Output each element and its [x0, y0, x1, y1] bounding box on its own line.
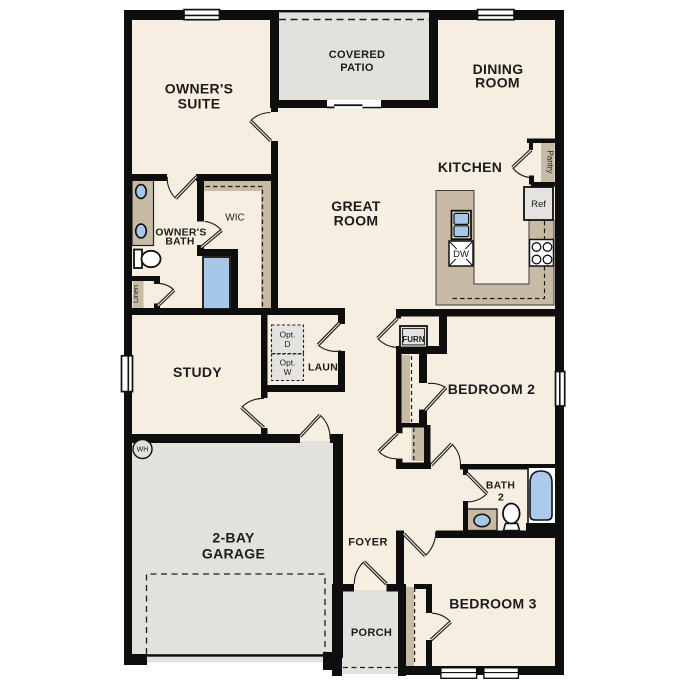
svg-text:BATH: BATH: [165, 237, 194, 248]
svg-text:BEDROOM 2: BEDROOM 2: [448, 381, 536, 397]
svg-text:ROOM: ROOM: [334, 213, 379, 229]
svg-text:PORCH: PORCH: [351, 627, 392, 639]
svg-text:WIC: WIC: [225, 213, 244, 224]
svg-text:BATH: BATH: [486, 481, 515, 492]
svg-text:Linen: Linen: [131, 285, 140, 303]
svg-text:2: 2: [498, 493, 504, 504]
svg-text:D: D: [285, 339, 291, 349]
svg-text:ROOM: ROOM: [475, 75, 520, 91]
svg-text:GARAGE: GARAGE: [202, 546, 265, 562]
svg-text:Opt.: Opt.: [280, 358, 296, 368]
svg-text:PATIO: PATIO: [340, 62, 374, 74]
svg-text:2-BAY: 2-BAY: [212, 530, 255, 546]
svg-text:DW: DW: [453, 249, 469, 260]
svg-text:SUITE: SUITE: [178, 96, 221, 112]
svg-text:STUDY: STUDY: [173, 364, 222, 380]
svg-text:Opt.: Opt.: [280, 330, 296, 340]
svg-text:WH: WH: [137, 447, 149, 454]
svg-text:W: W: [284, 367, 292, 377]
svg-text:OWNER'S: OWNER'S: [165, 81, 233, 97]
svg-text:LAUN: LAUN: [308, 363, 338, 374]
svg-text:FURN: FURN: [402, 335, 424, 344]
svg-text:Pantry: Pantry: [546, 150, 555, 173]
svg-text:BEDROOM 3: BEDROOM 3: [449, 596, 537, 612]
svg-text:FOYER: FOYER: [348, 537, 387, 549]
svg-text:COVERED: COVERED: [329, 49, 386, 61]
svg-text:Ref: Ref: [531, 199, 546, 210]
svg-text:KITCHEN: KITCHEN: [438, 159, 502, 175]
